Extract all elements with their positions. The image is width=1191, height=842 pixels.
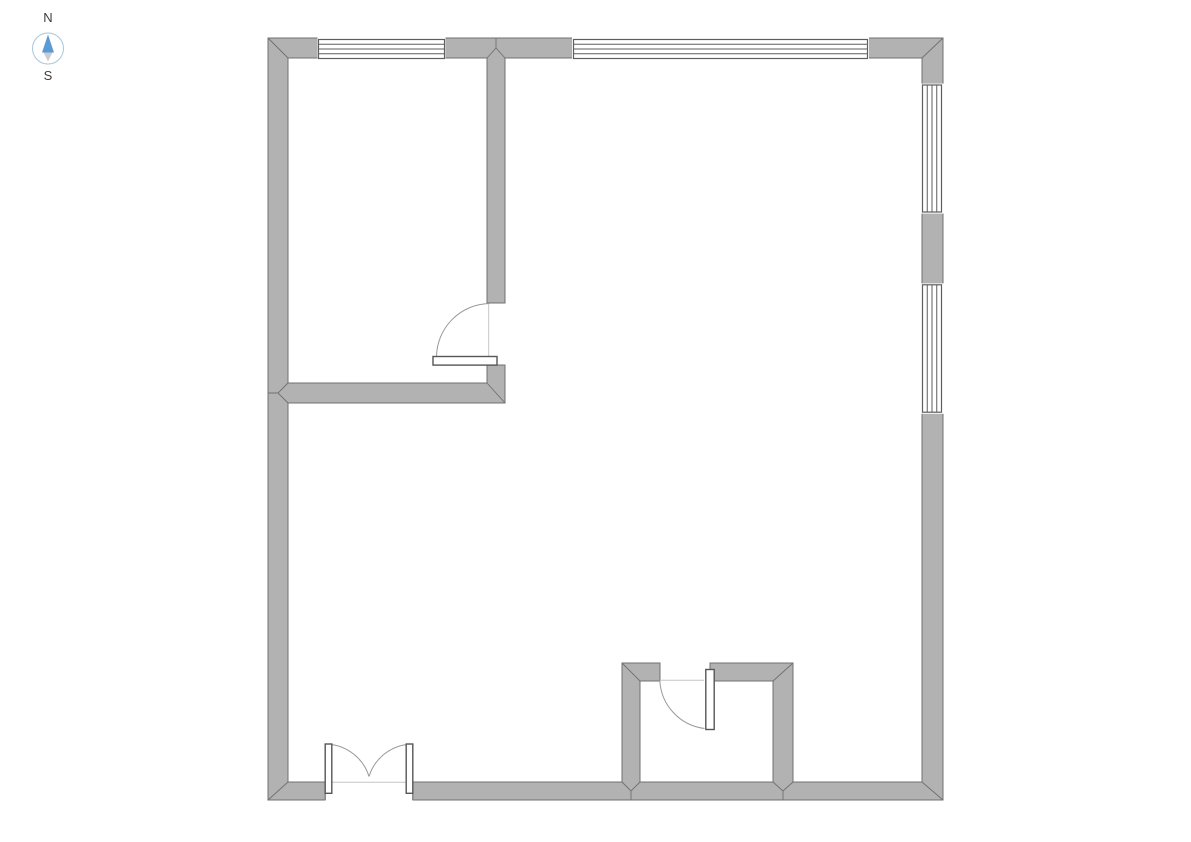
small-room-door-leaf [706, 670, 714, 730]
floor-plan-page: N S [0, 0, 1191, 842]
wall [288, 365, 505, 403]
wall-outline [268, 38, 943, 800]
interior-door-leaf [433, 357, 497, 366]
double-door-right-leaf [406, 744, 413, 793]
compass-north-label: N [43, 10, 52, 25]
wall [487, 58, 505, 303]
interior-door-swing-arc [437, 304, 490, 357]
floor-plan-canvas: N S [0, 0, 1191, 842]
double-door-left-swing-arc [329, 744, 369, 776]
wall [268, 38, 943, 800]
wall-outline [288, 58, 922, 782]
compass-rose: N S [33, 10, 64, 83]
compass-south-label: S [44, 68, 53, 83]
small-room-door-swing-arc [660, 681, 705, 729]
door-opening [325, 781, 413, 802]
door-closed-position-lines [326, 304, 704, 782]
floor-plan-drawing [268, 37, 944, 802]
double-door-right-swing-arc [369, 744, 409, 776]
double-door-left-leaf [325, 744, 332, 793]
